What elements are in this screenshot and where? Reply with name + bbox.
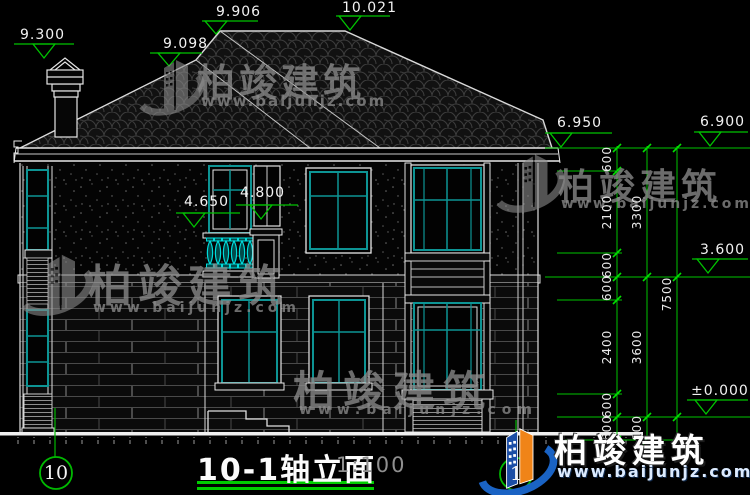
drawing-scale: 1:100 [336, 453, 407, 477]
elevation-balcony-rail: 4.650 [184, 194, 229, 210]
watermark-url: www.baijunjz.com [299, 402, 538, 418]
elevation-left-hip: 9.098 [163, 36, 208, 52]
elevation-second-floor: 3.600 [700, 242, 745, 258]
window-2f-center [306, 168, 371, 253]
elevation-ridge-right: 10.021 [342, 0, 397, 16]
dim-inner-4: 600 [600, 275, 614, 301]
elevation-eave-left: 6.950 [557, 115, 602, 131]
elevation-chimney-top: 9.300 [20, 27, 65, 43]
chimney [47, 58, 83, 137]
watermark-url: www.baijunjz.com [93, 300, 300, 316]
dim-inner-5: 2400 [600, 330, 614, 365]
dim-inner-1: 600 [600, 146, 614, 172]
balcony-pier-cap [250, 229, 282, 235]
brand-logo-url: www.baijunjz.com [557, 462, 750, 481]
dim-middle-2: 3600 [630, 330, 644, 365]
right-bay-spandrel [411, 261, 484, 295]
left-bay-window-1f [27, 310, 48, 386]
cad-elevation-drawing: 柏竣建筑 www.baijunjz.com 柏竣建筑 www.baijunjz.… [0, 0, 750, 495]
ground-line [0, 432, 643, 444]
elevation-ground: ±0.000 [691, 383, 749, 399]
balcony-top-rail [203, 233, 255, 238]
axis-label-10: 10 [44, 462, 68, 484]
elevation-ridge-left: 9.906 [216, 4, 261, 20]
elevation-eave-right: 6.900 [700, 114, 745, 130]
dim-middle-1: 3300 [630, 195, 644, 230]
left-bay-window-2f [27, 170, 48, 250]
elevation-balcony-pier: 4.800 [240, 185, 285, 201]
dim-outer-total: 7500 [660, 277, 674, 312]
axis-label-1: 1 [510, 463, 522, 485]
watermark-url: www.baijunjz.com [201, 92, 386, 110]
dim-inner-2: 2100 [600, 195, 614, 230]
watermark-url: www.baijunjz.com [561, 196, 750, 212]
